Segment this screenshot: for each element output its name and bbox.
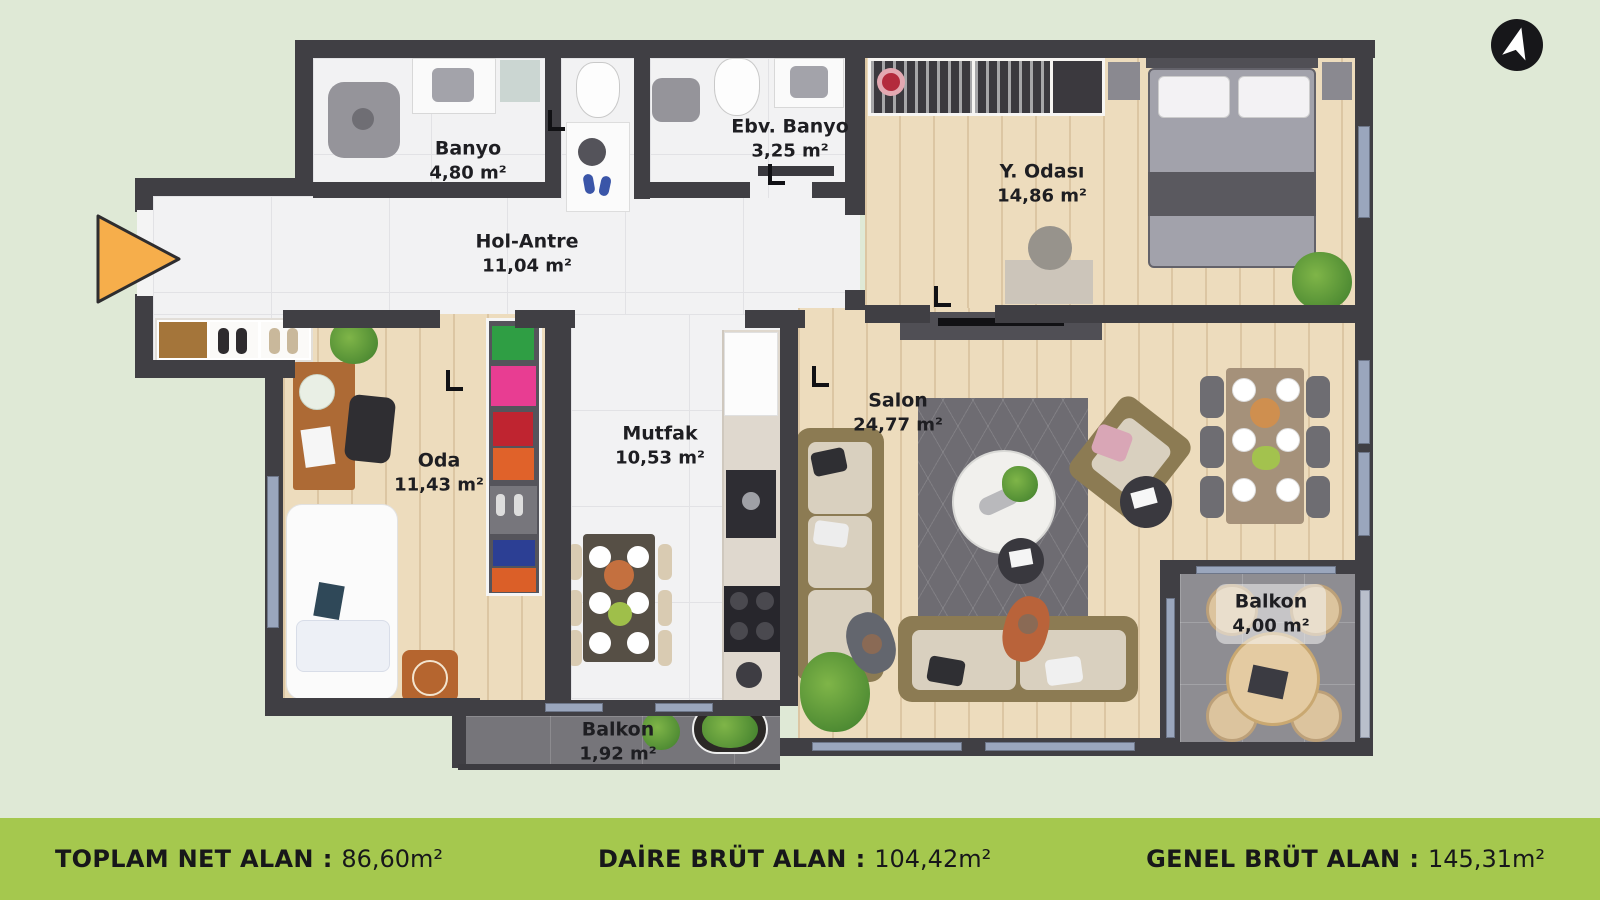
- shelf-box-blue: [493, 540, 535, 566]
- chair: [1200, 426, 1224, 468]
- shoe-rack-cell: [210, 322, 258, 358]
- throw-pillow: [812, 520, 849, 548]
- sink-basin: [790, 66, 828, 98]
- north-arrow-icon: [1489, 17, 1545, 73]
- window-dining-a: [1358, 360, 1370, 444]
- room-area: 10,53 m²: [615, 447, 705, 471]
- room-label-balkon-kucuk: Balkon 1,92 m²: [579, 718, 656, 767]
- plant: [1292, 252, 1352, 310]
- plate: [627, 632, 649, 654]
- room-area: 24,77 m²: [853, 414, 943, 438]
- laundry-cabinet: [566, 122, 630, 212]
- chair: [658, 544, 672, 580]
- room-name: Ebv. Banyo: [731, 115, 849, 140]
- nightstand: [1108, 62, 1140, 100]
- room-area: 1,92 m²: [579, 743, 656, 767]
- stat-toplam-net-alan: TOPLAM NET ALAN:86,60m²: [55, 845, 443, 873]
- door-swing-mark: [812, 366, 829, 387]
- chair: [658, 590, 672, 626]
- room-area: 11,43 m²: [394, 474, 484, 498]
- room-name: Balkon: [579, 718, 656, 743]
- papers: [301, 426, 336, 468]
- shoe: [236, 328, 247, 354]
- window-mutfak-balkon-b: [655, 703, 713, 712]
- wall-bedroom-left-lower: [845, 290, 865, 310]
- burner: [756, 592, 774, 610]
- office-chair: [344, 394, 397, 464]
- plate: [1232, 378, 1256, 402]
- pillow: [1238, 76, 1310, 118]
- burner: [756, 622, 774, 640]
- wall-oda-mutfak: [545, 314, 571, 704]
- wall-oda-bottom: [265, 698, 480, 716]
- sink-basin: [432, 68, 474, 102]
- shoe: [218, 328, 229, 354]
- stat-label: TOPLAM NET ALAN: [55, 845, 314, 873]
- room-area: 3,25 m²: [731, 140, 849, 164]
- grapes: [1252, 446, 1280, 470]
- shower-tray: [652, 78, 700, 122]
- stat-separator: :: [1409, 845, 1419, 873]
- shelf-box-orange: [493, 448, 534, 480]
- window-salon-b: [985, 742, 1135, 751]
- wall-balkon-buyuk-bottom: [1180, 742, 1373, 756]
- blanket: [1148, 172, 1316, 216]
- plate: [1232, 478, 1256, 502]
- decor-plate: [299, 374, 335, 410]
- entrance-direction-arrow: [95, 212, 183, 306]
- window-salon-a: [812, 742, 962, 751]
- mirror-cabinet: [500, 60, 540, 102]
- stat-daire-brut-alan: DAİRE BRÜT ALAN:104,42m²: [598, 845, 991, 873]
- pillow: [296, 620, 390, 672]
- wall-exterior-top: [295, 40, 1375, 58]
- rug-motif: [412, 660, 448, 696]
- stat-value: 104,42m²: [874, 845, 991, 873]
- serving-bowl: [1250, 398, 1280, 428]
- shelf-box-orange: [492, 568, 536, 592]
- faucet: [742, 492, 760, 510]
- window-bedroom: [1358, 126, 1370, 218]
- stat-separator: :: [323, 845, 333, 873]
- person-head: [1018, 614, 1038, 634]
- wall-banyo-left: [295, 40, 313, 196]
- plate: [1276, 378, 1300, 402]
- stat-label: GENEL BRÜT ALAN: [1146, 845, 1400, 873]
- room-label-hol-antre: Hol-Antre 11,04 m²: [476, 230, 579, 279]
- wall-mutfak-balkon: [480, 700, 780, 716]
- plate: [589, 632, 611, 654]
- room-name: Oda: [394, 449, 484, 474]
- door-swing-mark: [768, 164, 785, 185]
- shelf-box-pink: [491, 366, 536, 406]
- chair: [1306, 426, 1330, 468]
- washer-drum: [578, 138, 606, 166]
- stats-bar: TOPLAM NET ALAN:86,60m² DAİRE BRÜT ALAN:…: [0, 818, 1600, 900]
- floor-plan-page: Banyo 4,80 m² Ebv. Banyo 3,25 m² Y. Odas…: [0, 0, 1600, 900]
- plate: [1232, 428, 1256, 452]
- chair: [1200, 476, 1224, 518]
- window-mutfak-balkon-a: [545, 703, 603, 712]
- wall-bedroom-bottom-b: [995, 305, 1355, 323]
- plate: [1276, 428, 1300, 452]
- fruit-bowl: [604, 560, 634, 590]
- chair: [1306, 476, 1330, 518]
- room-name: Hol-Antre: [476, 230, 579, 255]
- fridge: [724, 332, 778, 416]
- wardrobe-section: [1053, 61, 1103, 113]
- room-area: 11,04 m²: [476, 255, 579, 279]
- stat-genel-brut-alan: GENEL BRÜT ALAN:145,31m²: [1146, 845, 1545, 873]
- shelf-box-green: [492, 326, 534, 360]
- room-label-y-odasi: Y. Odası 14,86 m²: [997, 160, 1087, 209]
- wall-ebv-bottom-left: [650, 182, 750, 198]
- shoe: [496, 494, 505, 516]
- wall-hol-bottom-a: [283, 310, 440, 328]
- room-area: 4,00 m²: [1232, 615, 1309, 639]
- room-label-ebv-banyo: Ebv. Banyo 3,25 m²: [731, 115, 849, 164]
- doormat: [159, 322, 207, 358]
- room-name: Y. Odası: [997, 160, 1087, 185]
- door-swing-mark: [446, 370, 463, 391]
- chair: [658, 630, 672, 666]
- room-area: 14,86 m²: [997, 185, 1087, 209]
- room-label-oda: Oda 11,43 m²: [394, 449, 484, 498]
- wall-balkon-kucuk-left: [452, 700, 466, 768]
- window-balkon-top: [1196, 566, 1336, 574]
- shelf-box-red: [493, 412, 533, 446]
- wall-bedroom-bottom-a: [865, 305, 930, 323]
- sofa-cushion: [912, 630, 1016, 690]
- wall-laundry-right: [634, 58, 650, 199]
- stat-separator: :: [856, 845, 866, 873]
- shoe: [269, 328, 280, 354]
- wall-hol-top: [135, 178, 313, 196]
- toilet: [576, 62, 620, 118]
- toilet: [714, 58, 760, 116]
- door-swing-mark: [548, 110, 565, 131]
- chair: [1306, 376, 1330, 418]
- room-name: Balkon: [1232, 590, 1309, 615]
- person-head: [862, 634, 882, 654]
- window-oda: [267, 476, 279, 628]
- wardrobe-section: [975, 61, 1049, 113]
- stat-value: 145,31m²: [1428, 845, 1545, 873]
- nightstand: [1322, 62, 1352, 100]
- room-label-balkon-buyuk: Balkon 4,00 m²: [1232, 590, 1309, 639]
- burner: [730, 622, 748, 640]
- room-name: Salon: [853, 389, 943, 414]
- pillow: [1158, 76, 1230, 118]
- room-name: Banyo: [429, 137, 506, 162]
- plant: [1002, 466, 1038, 502]
- chair: [1200, 376, 1224, 418]
- burner: [730, 592, 748, 610]
- stat-value: 86,60m²: [341, 845, 443, 873]
- grapes: [608, 602, 632, 626]
- room-label-salon: Salon 24,77 m²: [853, 389, 943, 438]
- wall-mutfak-salon: [780, 310, 798, 706]
- plate: [1276, 478, 1300, 502]
- throw-pillow: [1044, 656, 1083, 687]
- window-balkon-right: [1360, 590, 1370, 738]
- trash-bin: [736, 662, 762, 688]
- room-name: Mutfak: [615, 422, 705, 447]
- room-label-mutfak: Mutfak 10,53 m²: [615, 422, 705, 471]
- shoe: [287, 328, 298, 354]
- window-dining-b: [1358, 452, 1370, 536]
- wall-ebv-bottom-right: [812, 182, 845, 198]
- room-label-banyo: Banyo 4,80 m²: [429, 137, 506, 186]
- room-area: 4,80 m²: [429, 162, 506, 186]
- shower-drain: [352, 108, 374, 130]
- stat-label: DAİRE BRÜT ALAN: [598, 845, 847, 873]
- desk-chair: [1028, 226, 1072, 270]
- door-swing-mark: [934, 286, 951, 307]
- shoe: [514, 494, 523, 516]
- hat-box-inner: [882, 73, 900, 91]
- window-balkon-left: [1166, 598, 1175, 738]
